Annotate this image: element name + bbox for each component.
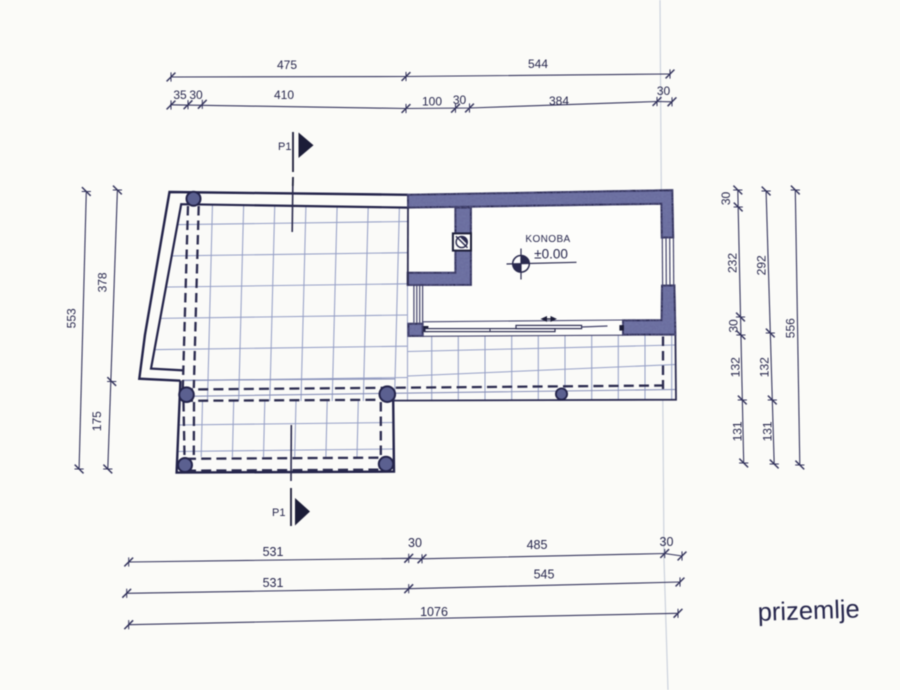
svg-text:100: 100	[422, 95, 442, 109]
svg-text:485: 485	[527, 538, 548, 552]
svg-text:292: 292	[754, 255, 768, 275]
svg-text:132: 132	[728, 357, 742, 377]
svg-text:232: 232	[725, 253, 739, 273]
svg-text:30: 30	[660, 535, 674, 549]
svg-text:P1: P1	[278, 141, 291, 153]
svg-text:KONOBA: KONOBA	[525, 234, 570, 245]
svg-text:1076: 1076	[420, 605, 448, 619]
svg-text:30: 30	[657, 84, 671, 98]
svg-text:544: 544	[528, 57, 548, 71]
svg-text:475: 475	[277, 58, 297, 72]
svg-text:545: 545	[534, 568, 555, 582]
svg-text:P1: P1	[272, 507, 285, 519]
svg-text:410: 410	[274, 88, 294, 102]
svg-text:531: 531	[263, 545, 284, 559]
svg-text:531: 531	[263, 576, 284, 590]
svg-text:±0.00: ±0.00	[534, 247, 568, 262]
svg-text:384: 384	[549, 94, 569, 108]
svg-text:30: 30	[719, 192, 733, 206]
svg-text:35: 35	[173, 88, 187, 102]
svg-text:132: 132	[758, 357, 772, 377]
svg-text:131: 131	[760, 421, 774, 441]
svg-text:prizemlje: prizemlje	[757, 595, 860, 627]
svg-text:30: 30	[408, 536, 422, 550]
svg-text:30: 30	[726, 319, 740, 333]
svg-text:556: 556	[784, 318, 798, 338]
svg-text:175: 175	[90, 411, 104, 431]
svg-text:30: 30	[453, 93, 467, 107]
svg-text:553: 553	[65, 308, 79, 328]
svg-text:131: 131	[731, 421, 745, 441]
svg-text:378: 378	[96, 272, 110, 292]
svg-text:30: 30	[189, 88, 203, 102]
